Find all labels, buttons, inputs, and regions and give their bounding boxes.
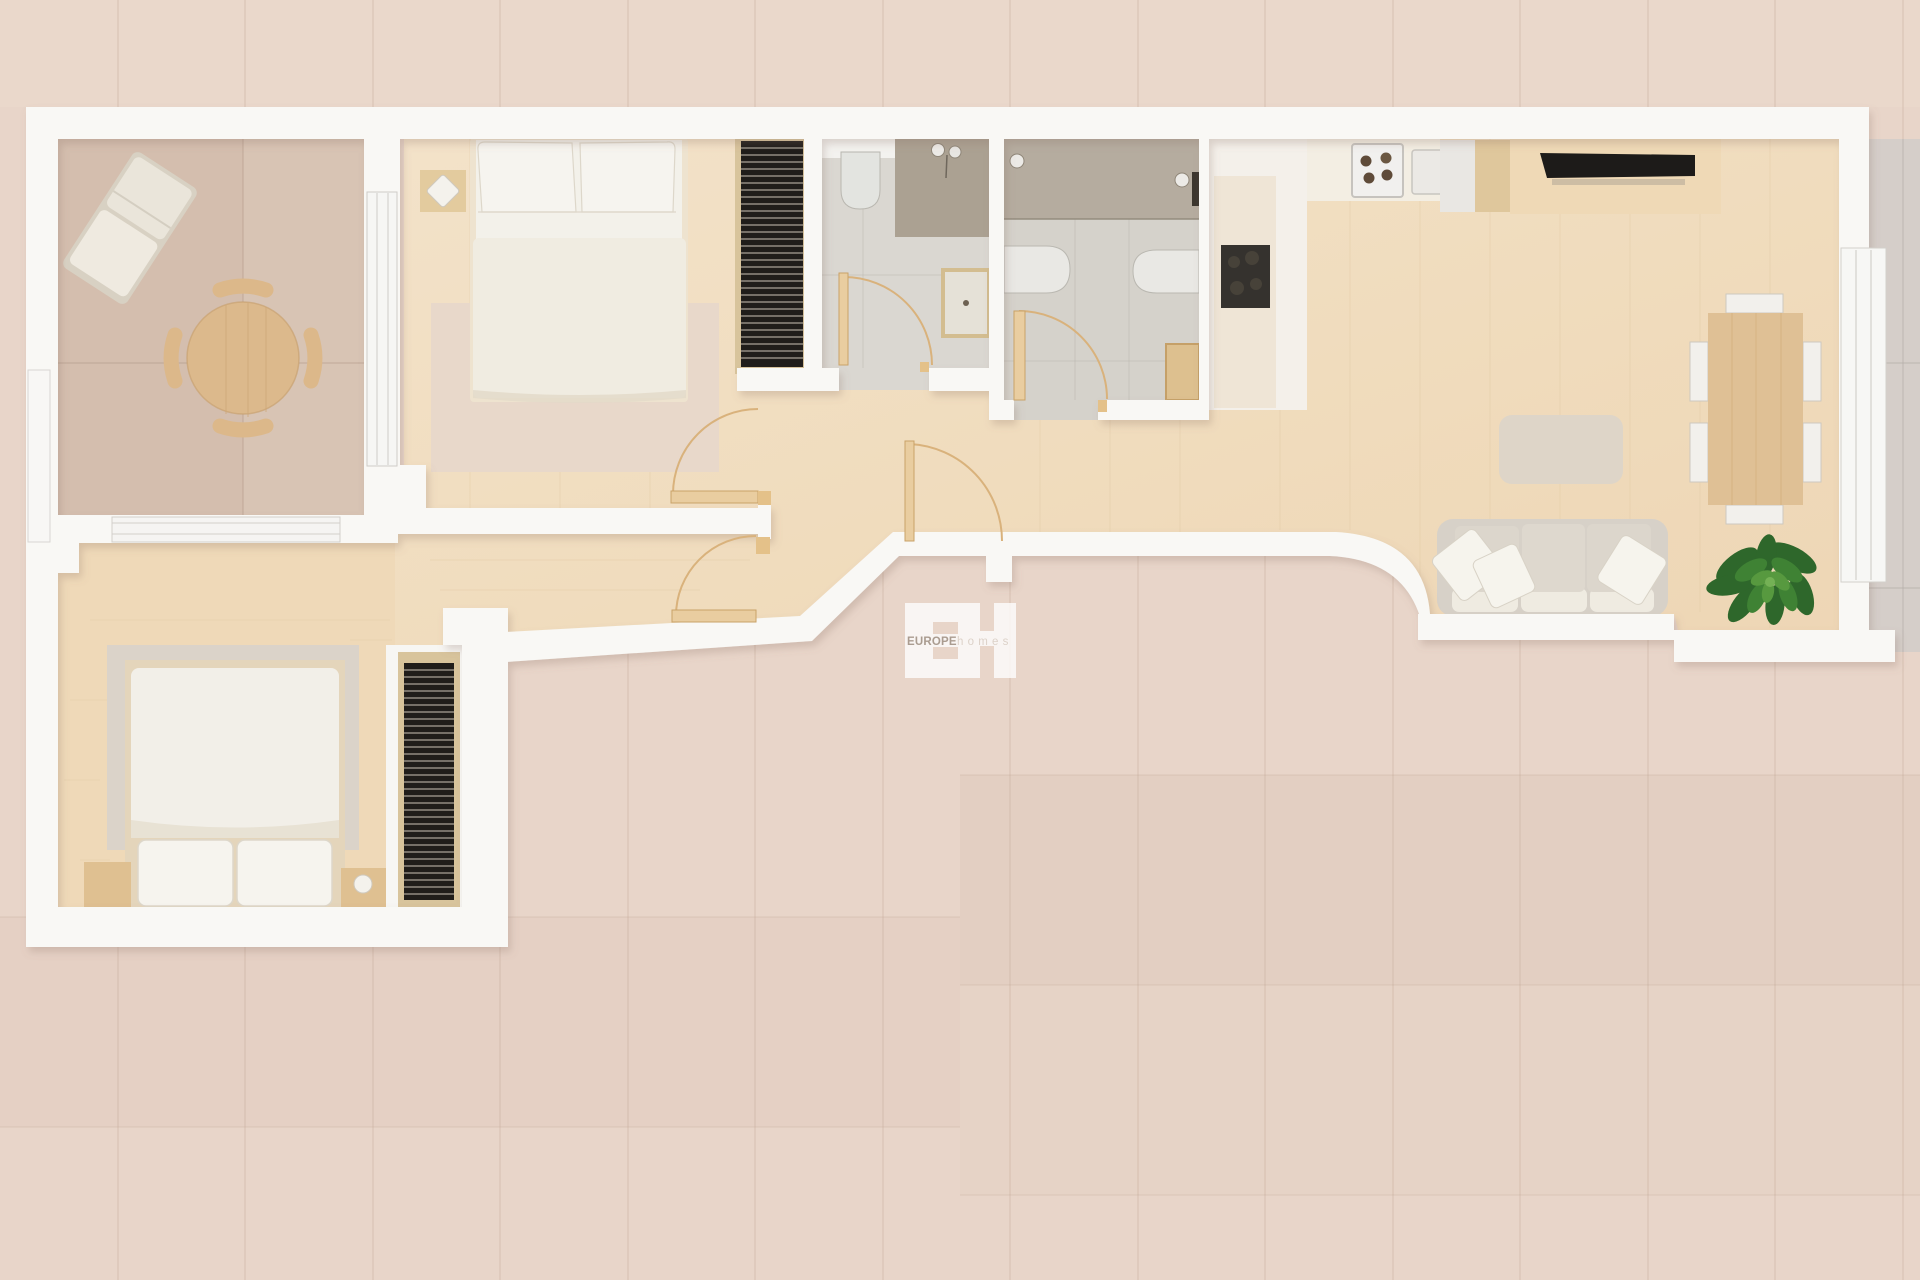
svg-text:homes: homes xyxy=(957,636,1013,648)
svg-text:EUROPE: EUROPE xyxy=(907,636,957,648)
